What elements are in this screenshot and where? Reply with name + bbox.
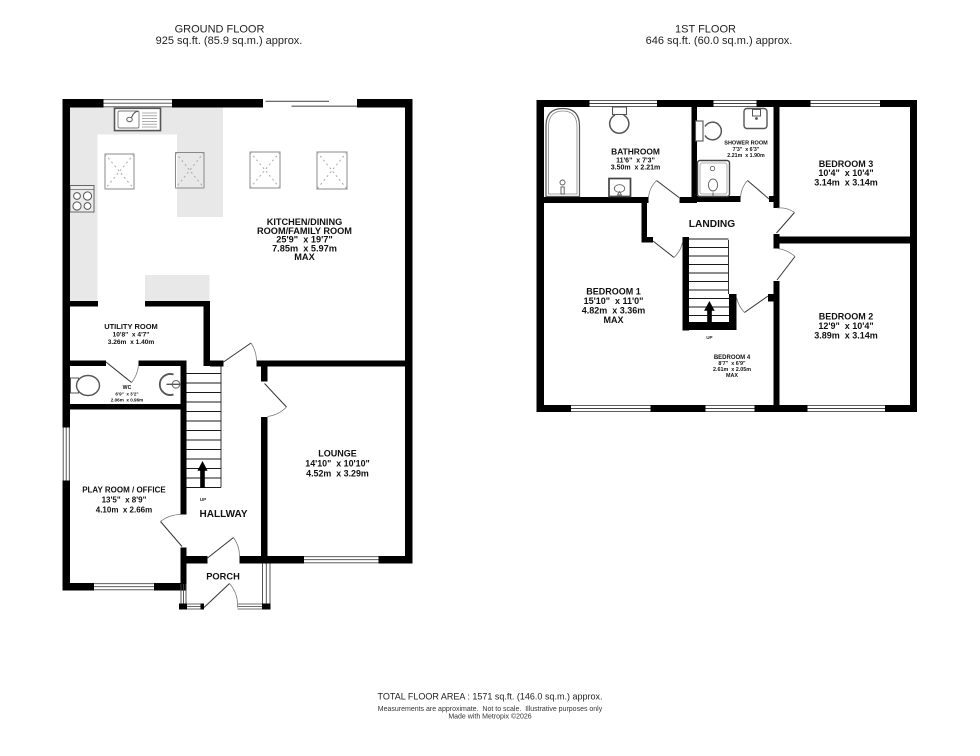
svg-text:Measurements are approximate.: Measurements are approximate. Not to sca… [378, 706, 603, 713]
svg-text:HALLWAY: HALLWAY [200, 509, 248, 520]
svg-text:925 sq.ft. (85.9 sq.m.) approx: 925 sq.ft. (85.9 sq.m.) approx. [156, 35, 303, 47]
svg-text:2.21m x 1.90m: 2.21m x 1.90m [727, 153, 765, 159]
svg-text:14'10" x 10'10": 14'10" x 10'10" [305, 459, 369, 469]
svg-text:GROUND FLOOR: GROUND FLOOR [175, 24, 265, 36]
svg-text:3.50m x 2.21m: 3.50m x 2.21m [611, 165, 660, 172]
svg-text:1ST FLOOR: 1ST FLOOR [675, 24, 736, 36]
svg-text:BEDROOM 1: BEDROOM 1 [586, 287, 641, 297]
svg-text:WC: WC [123, 385, 132, 391]
svg-text:MAX: MAX [294, 252, 315, 262]
svg-text:LANDING: LANDING [689, 219, 735, 230]
svg-text:LOUNGE: LOUNGE [318, 449, 357, 459]
svg-text:4.52m x 3.29m: 4.52m x 3.29m [306, 468, 369, 478]
svg-text:MAX: MAX [604, 315, 624, 325]
svg-text:PLAY ROOM / OFFICE: PLAY ROOM / OFFICE [82, 485, 166, 494]
svg-text:3.26m x 1.40m: 3.26m x 1.40m [108, 339, 155, 346]
svg-text:UP: UP [706, 335, 712, 340]
svg-text:Made with Metropix ©2026: Made with Metropix ©2026 [448, 713, 531, 721]
svg-text:UP: UP [200, 497, 206, 502]
svg-text:15'10" x 11'0": 15'10" x 11'0" [584, 296, 644, 306]
svg-text:TOTAL FLOOR AREA : 1571 sq.ft.: TOTAL FLOOR AREA : 1571 sq.ft. (146.0 sq… [378, 692, 603, 702]
svg-text:3.14m x 3.14m: 3.14m x 3.14m [814, 177, 878, 187]
svg-text:10'8" x 4'7": 10'8" x 4'7" [113, 332, 150, 339]
svg-text:13'5" x 8'9": 13'5" x 8'9" [102, 495, 147, 504]
svg-text:11'6" x 7'3": 11'6" x 7'3" [616, 158, 655, 165]
svg-text:646 sq.ft. (60.0 sq.m.) approx: 646 sq.ft. (60.0 sq.m.) approx. [646, 35, 793, 47]
svg-text:PORCH: PORCH [206, 571, 240, 581]
svg-text:3.89m x 3.14m: 3.89m x 3.14m [814, 330, 878, 340]
svg-text:UTILITY ROOM: UTILITY ROOM [104, 322, 158, 331]
svg-text:4.10m x 2.66m: 4.10m x 2.66m [96, 505, 152, 514]
svg-text:BEDROOM 2: BEDROOM 2 [819, 312, 874, 322]
svg-text:2.06m x 0.96m: 2.06m x 0.96m [111, 398, 143, 403]
svg-text:6'9" x 3'2": 6'9" x 3'2" [115, 392, 138, 397]
svg-text:BATHROOM: BATHROOM [611, 147, 660, 157]
svg-text:SHOWER ROOM: SHOWER ROOM [724, 141, 768, 147]
svg-text:MAX: MAX [726, 373, 738, 379]
